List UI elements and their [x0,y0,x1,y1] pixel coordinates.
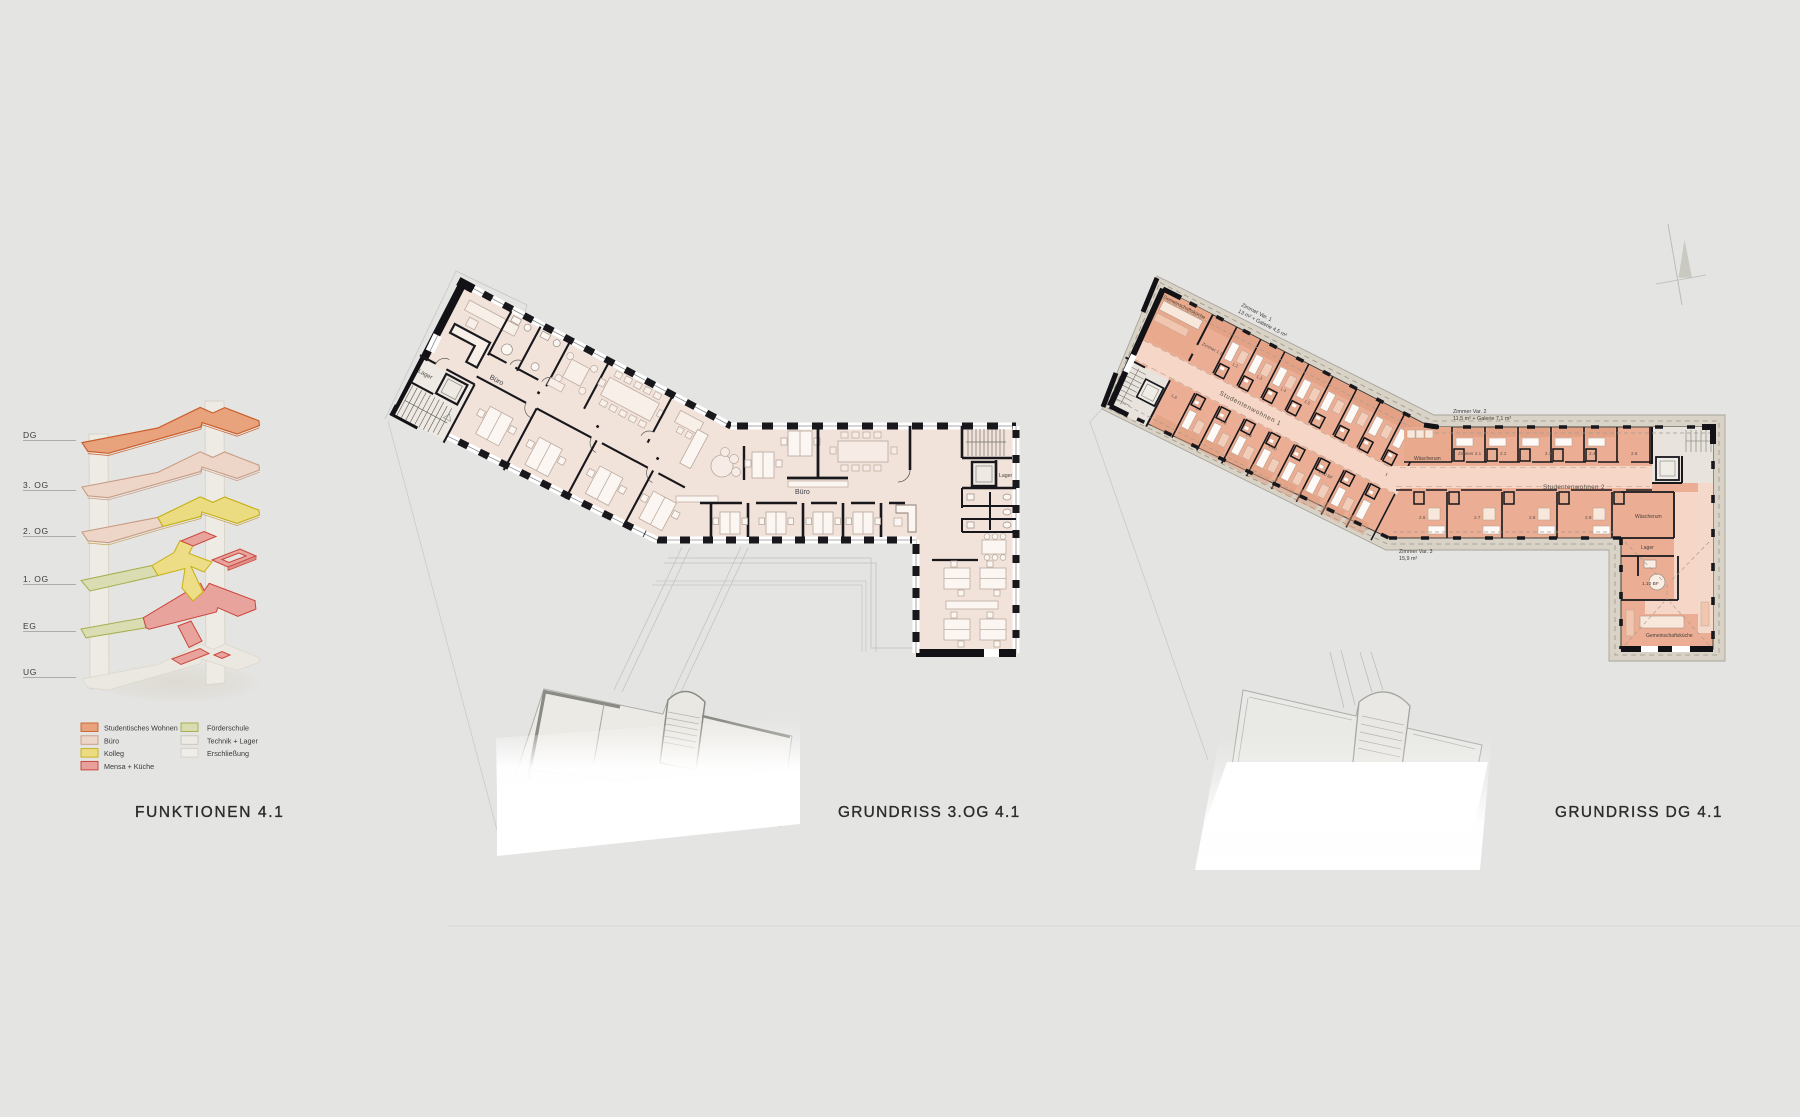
svg-text:UG: UG [23,667,37,677]
svg-text:DG: DG [23,430,37,440]
svg-text:Studentenwohnen 2: Studentenwohnen 2 [1543,484,1605,491]
svg-text:Lager: Lager [999,473,1013,479]
svg-text:Wäscherum: Wäscherum [1635,514,1662,520]
svg-text:1. OG: 1. OG [23,574,49,584]
svg-text:15,9 m²: 15,9 m² [1399,556,1417,562]
svg-text:GRUNDRISS DG 4.1: GRUNDRISS DG 4.1 [1555,804,1723,821]
svg-text:Lager: Lager [1641,545,1654,551]
svg-text:2.8: 2.8 [1529,515,1536,520]
svg-text:Studentisches Wohnen: Studentisches Wohnen [104,724,178,733]
svg-text:Zimmer Var. 3: Zimmer Var. 3 [1399,549,1432,555]
svg-text:Wäscherum: Wäscherum [1414,456,1441,462]
svg-text:2. OG: 2. OG [23,526,49,536]
svg-text:Kolleg: Kolleg [104,749,124,758]
svg-text:Zimmer Var. 2: Zimmer Var. 2 [1453,409,1486,415]
svg-text:Erschließung: Erschließung [207,749,249,758]
svg-text:1.10 BF: 1.10 BF [1642,581,1659,587]
svg-text:2.9: 2.9 [1585,515,1592,520]
svg-text:2.4: 2.4 [1589,451,1596,456]
svg-text:FUNKTIONEN 4.1: FUNKTIONEN 4.1 [135,804,285,821]
svg-text:Mensa + Küche: Mensa + Küche [104,762,154,771]
svg-text:Büro: Büro [795,489,810,496]
svg-text:Technik + Lager: Technik + Lager [207,736,259,745]
svg-text:Zimmer 2.1: Zimmer 2.1 [1458,451,1482,456]
svg-text:2.5: 2.5 [1631,451,1638,456]
svg-text:2.6: 2.6 [1419,515,1426,520]
svg-text:Förderschule: Förderschule [207,724,249,733]
svg-text:Büro: Büro [104,736,119,745]
svg-text:EG: EG [23,621,36,631]
svg-text:11,5 m² + Galerie 7,1 m²: 11,5 m² + Galerie 7,1 m² [1453,416,1511,422]
svg-text:GRUNDRISS 3.OG 4.1: GRUNDRISS 3.OG 4.1 [838,804,1020,821]
svg-text:Gemeinschaftsküche: Gemeinschaftsküche [1646,633,1693,639]
svg-text:2.3: 2.3 [1545,451,1552,456]
svg-text:2.7: 2.7 [1474,515,1481,520]
svg-text:2.2: 2.2 [1500,451,1507,456]
svg-text:3. OG: 3. OG [23,480,49,490]
